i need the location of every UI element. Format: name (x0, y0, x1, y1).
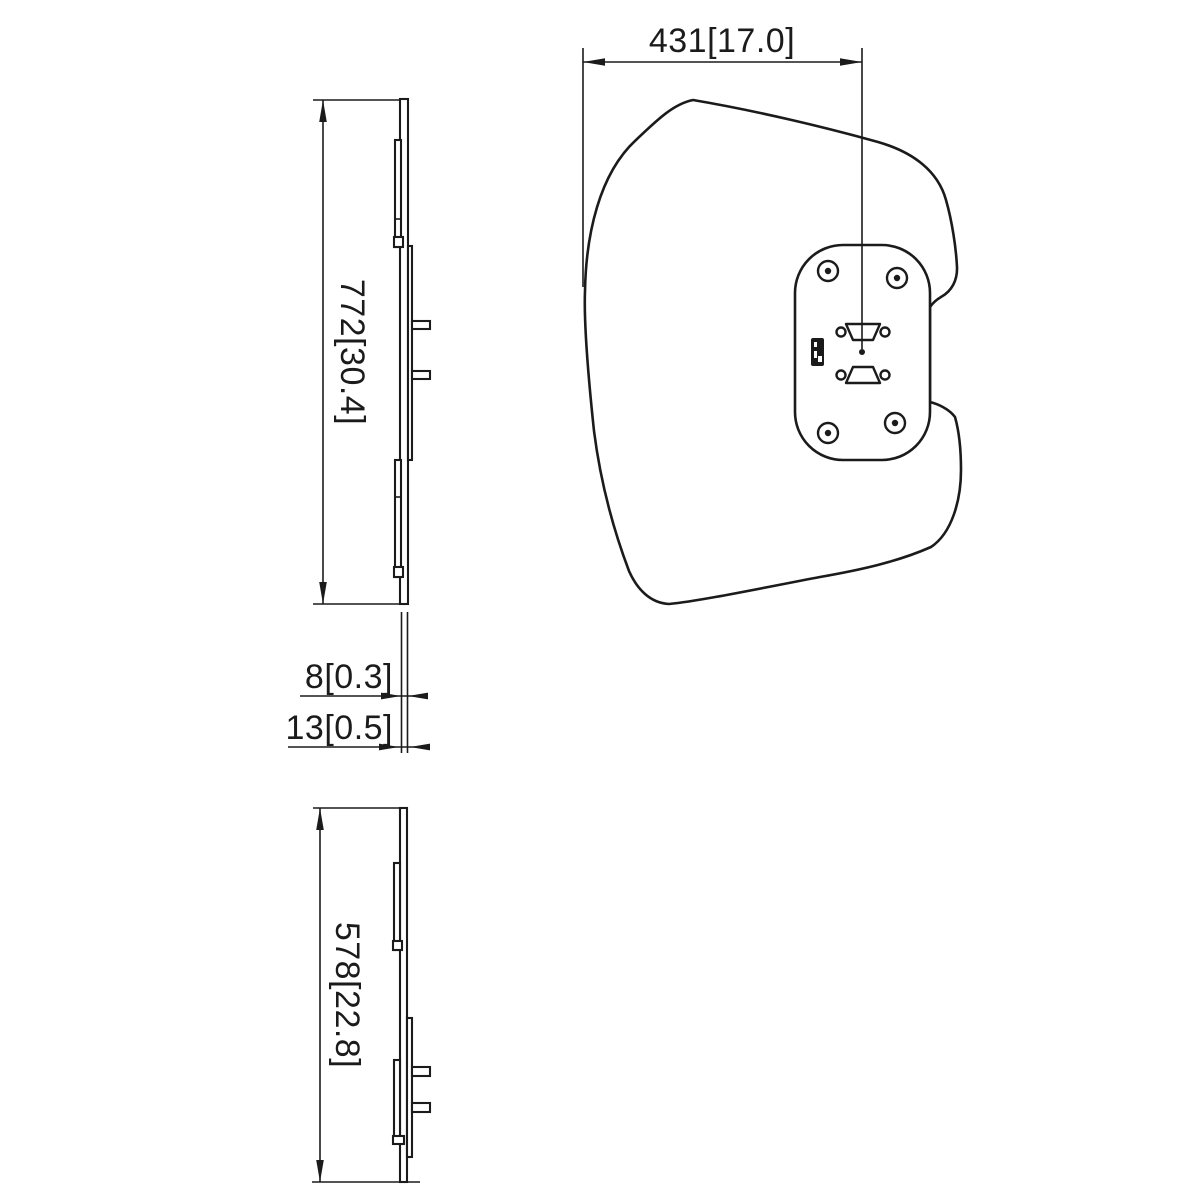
thickness-dimensions: 8[0.3] 13[0.5] (286, 612, 430, 753)
connector-shell (846, 367, 880, 383)
profile-foot (394, 567, 403, 577)
arrowhead-right (840, 58, 862, 66)
arrowhead-left (583, 58, 605, 66)
profile-stud (412, 1103, 430, 1112)
connector-shell (846, 324, 880, 340)
screw-center (825, 430, 831, 436)
connector-ear (881, 371, 890, 380)
usb-port (811, 338, 824, 366)
dimension-label-772: 772[30.4] (333, 279, 371, 425)
profile-stud (412, 1067, 430, 1076)
center-mark (859, 349, 865, 355)
usb-body (811, 338, 824, 366)
profile-strip (395, 460, 401, 577)
side-view-top: 772[30.4] (313, 99, 430, 604)
dimension-label-578: 578[22.8] (328, 922, 366, 1068)
side-view-bottom: 578[22.8] (312, 808, 430, 1182)
profile-strip (395, 140, 401, 247)
screw-center (894, 275, 900, 281)
profile-foot (393, 1136, 404, 1144)
arrowhead-down (319, 582, 327, 604)
usb-slot (818, 356, 822, 362)
profile-stud (412, 371, 430, 379)
connector-ear (881, 328, 890, 337)
connector-ear (837, 371, 846, 380)
front-view: 431[17.0] (583, 22, 961, 604)
usb-slot (814, 351, 817, 358)
technical-drawing-canvas: 772[30.4] 8[0.3] 13[0.5] 578 (0, 0, 1200, 1200)
usb-slot (814, 342, 817, 347)
profile-stud (412, 321, 430, 329)
dimension-label-8: 8[0.3] (305, 658, 393, 696)
screw-center (892, 420, 898, 426)
arrowhead-down (316, 1160, 324, 1182)
connector-ear (837, 328, 846, 337)
profile-strip (394, 1060, 400, 1143)
profile-foot (394, 237, 403, 247)
profile-strip (408, 246, 412, 460)
dimension-label-13: 13[0.5] (286, 709, 393, 747)
arrowhead-left (410, 744, 430, 751)
profile-strip (407, 1018, 412, 1157)
profile-foot (393, 941, 402, 950)
profile-strip (394, 863, 400, 950)
arrowhead-up (316, 808, 324, 830)
arrowhead-left (408, 693, 428, 700)
screw-center (825, 268, 831, 274)
arrowhead-up (319, 100, 327, 122)
dimension-label-431: 431[17.0] (649, 22, 795, 60)
